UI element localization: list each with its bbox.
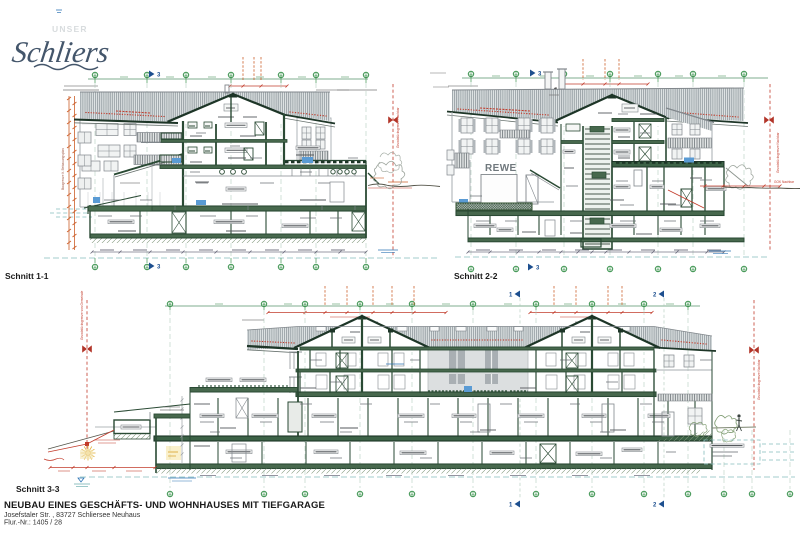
svg-text:Grundstücksgrenze Nachbar: Grundstücksgrenze Nachbar bbox=[776, 131, 780, 173]
svg-text:Schnitt 3-3: Schnitt 3-3 bbox=[16, 484, 60, 494]
svg-text:REWE: REWE bbox=[485, 163, 517, 174]
svg-text:Schnitt 1-1: Schnitt 1-1 bbox=[5, 271, 49, 281]
svg-text:UNSER: UNSER bbox=[52, 24, 88, 34]
svg-text:Schliers: Schliers bbox=[10, 35, 111, 69]
svg-text:Flur.-Nr.: 1405 / 28: Flur.-Nr.: 1405 / 28 bbox=[4, 520, 62, 527]
svg-text:Grundstücksgrenze Nachbar: Grundstücksgrenze Nachbar bbox=[757, 358, 761, 400]
svg-text:GOK Nachbar: GOK Nachbar bbox=[774, 180, 795, 184]
svg-text:Grundstücksgrenze Nachbar: Grundstücksgrenze Nachbar bbox=[396, 106, 400, 148]
svg-text:Grundstücksgrenze von Gemeinde: Grundstücksgrenze von Gemeinde bbox=[80, 291, 84, 340]
svg-text:Josefstaler Str. , 83727 Schli: Josefstaler Str. , 83727 Schliersee Neuh… bbox=[4, 512, 141, 519]
svg-text:Schnitt 2-2: Schnitt 2-2 bbox=[454, 271, 498, 281]
svg-text:Baugrenze lt. Bebauungsplan: Baugrenze lt. Bebauungsplan bbox=[61, 148, 65, 190]
svg-text:NEUBAU EINES GESCHÄFTS- UND WO: NEUBAU EINES GESCHÄFTS- UND WOHNHAUSES M… bbox=[4, 500, 325, 511]
